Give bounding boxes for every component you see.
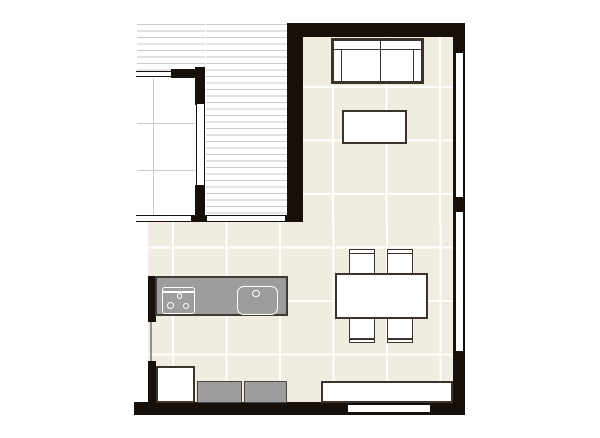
dining-chair-bottom-right [387, 318, 414, 343]
coffee-table [342, 110, 407, 144]
low-cabinet-white [321, 381, 453, 403]
wall-tiled-room-right-upper [195, 67, 205, 105]
window-balcony-right [207, 215, 285, 222]
dining-table [335, 273, 428, 319]
sofa-seat-cushion-left [341, 49, 381, 82]
wall-kitchen-left-lower [148, 361, 156, 402]
sofa-armrest-right [413, 49, 422, 82]
window-tiled-room-right [196, 104, 205, 185]
base-unit-gray-2 [244, 381, 288, 404]
tiled-room-grid-horizontal-2 [137, 170, 195, 171]
wall-left-column [287, 23, 303, 222]
balcony-deck-right [206, 24, 287, 216]
cooktop [162, 287, 195, 314]
tiled-room-grid-vertical [153, 78, 154, 215]
tiled-room-floor [137, 78, 195, 215]
window-kitchen-left [150, 322, 152, 361]
wall-balcony-end-cap [285, 215, 303, 222]
base-unit-gray-1 [197, 381, 243, 404]
balcony-deck-top [137, 24, 205, 72]
sofa-seat-cushion-right [380, 49, 414, 82]
cooktop-burner-small [177, 293, 182, 298]
window-bottom-wall [348, 405, 430, 412]
floor-plan [0, 0, 600, 438]
window-balcony-left [136, 215, 191, 222]
dining-chair-top-right [387, 249, 414, 274]
dining-chair-bottom-left [349, 318, 375, 343]
window-tiled-room-top [136, 71, 171, 77]
wall-balcony-post [191, 215, 207, 222]
window-right-lower [455, 212, 465, 351]
cooktop-burner-left [167, 302, 174, 309]
tiled-room-grid-horizontal-1 [137, 123, 195, 124]
corner-cabinet-white [156, 366, 196, 403]
sink-faucet [252, 290, 259, 297]
window-right-upper [455, 53, 465, 197]
dining-chair-top-left [349, 249, 375, 274]
wall-top [287, 23, 465, 37]
